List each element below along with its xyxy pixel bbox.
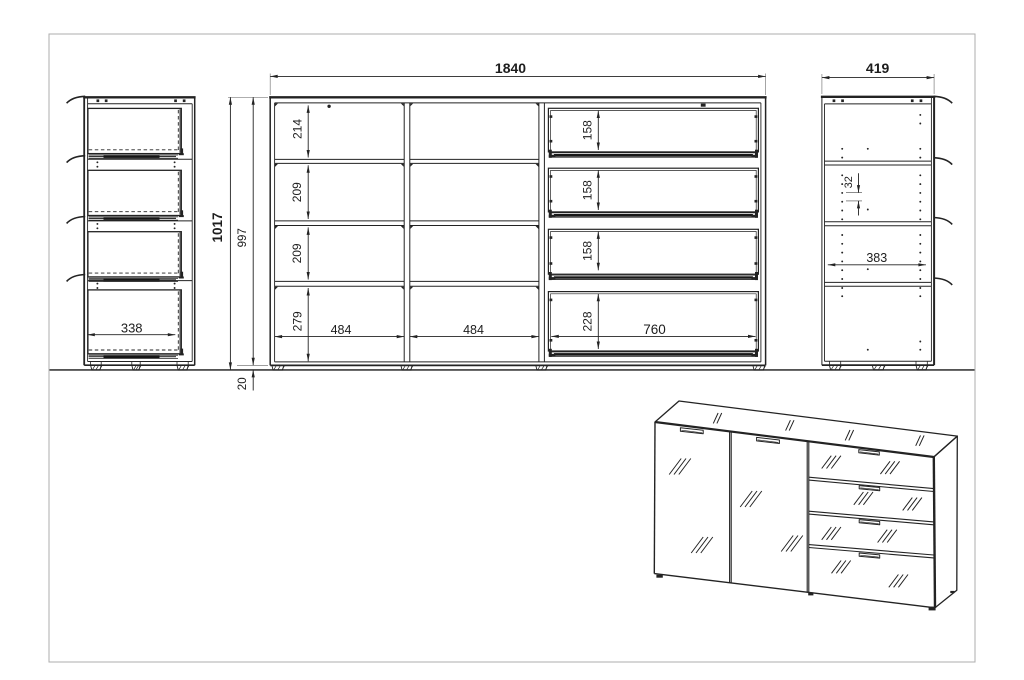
svg-text:338: 338 xyxy=(121,320,143,335)
svg-text:997: 997 xyxy=(237,228,249,247)
svg-text:158: 158 xyxy=(581,120,595,140)
svg-text:383: 383 xyxy=(866,251,887,265)
svg-text:484: 484 xyxy=(463,323,484,337)
svg-text:419: 419 xyxy=(866,60,890,76)
svg-text:1840: 1840 xyxy=(495,60,526,76)
svg-text:209: 209 xyxy=(290,243,304,263)
svg-text:279: 279 xyxy=(291,311,305,331)
svg-text:760: 760 xyxy=(643,322,666,337)
svg-text:158: 158 xyxy=(581,180,595,200)
svg-text:214: 214 xyxy=(291,119,305,139)
svg-text:228: 228 xyxy=(581,311,595,331)
svg-text:32: 32 xyxy=(843,176,855,188)
svg-text:1017: 1017 xyxy=(210,212,225,242)
svg-text:484: 484 xyxy=(331,323,352,337)
svg-text:20: 20 xyxy=(237,377,249,390)
svg-text:158: 158 xyxy=(581,241,595,261)
svg-text:209: 209 xyxy=(290,182,304,202)
